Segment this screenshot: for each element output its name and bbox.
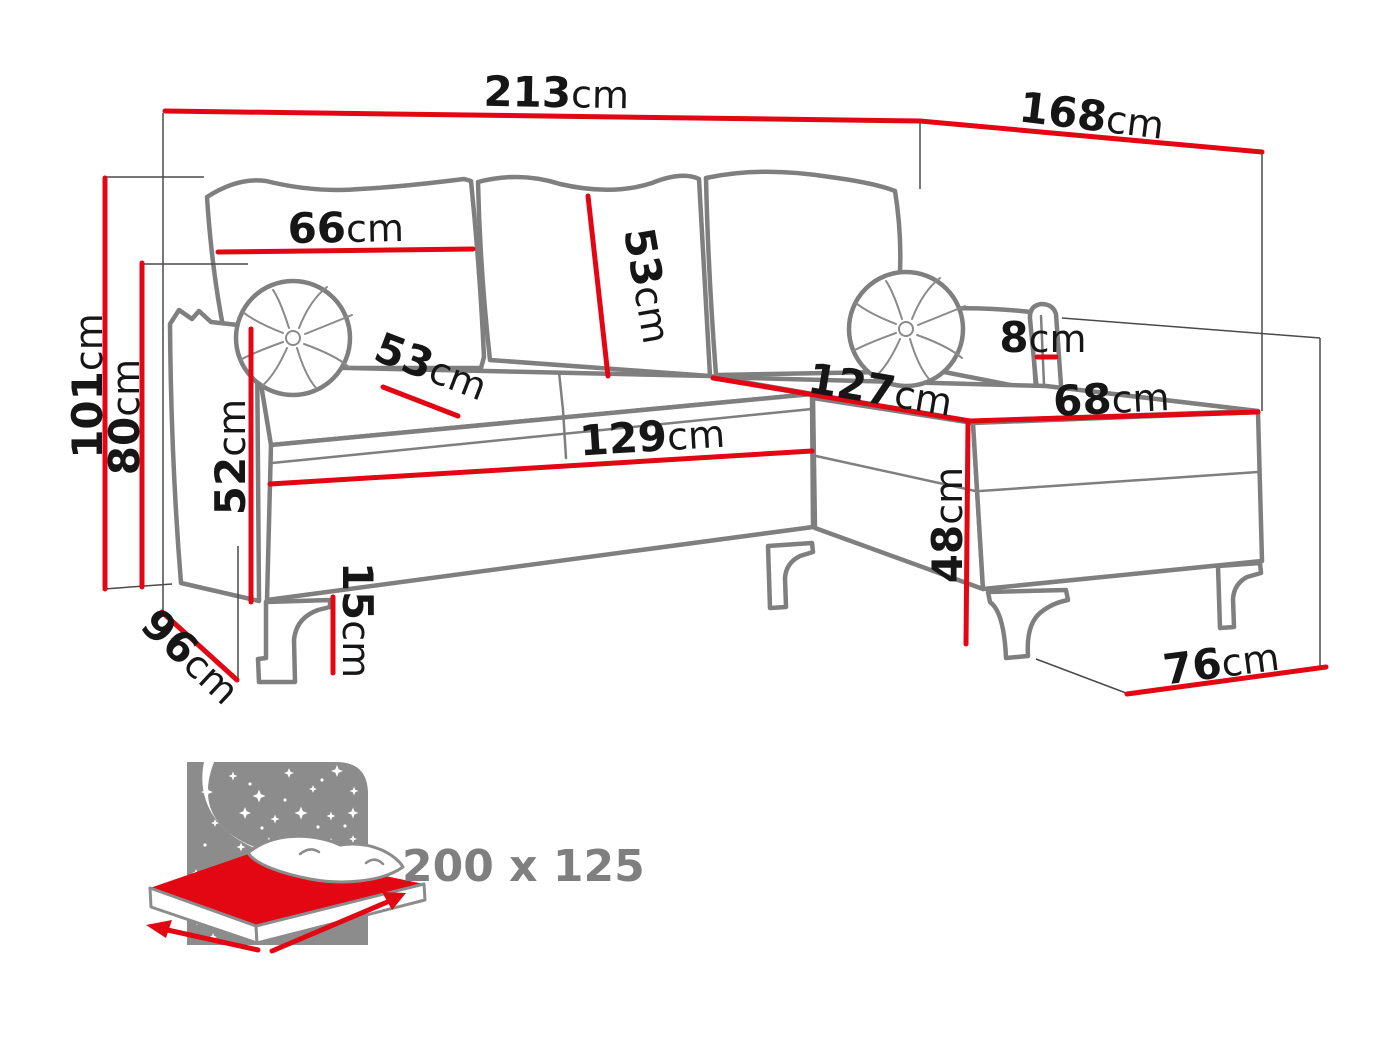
leg-chaise-right	[1218, 563, 1261, 628]
dimension-width-total: 213cm	[165, 67, 920, 121]
dimension-armrest-top: 8cm	[999, 313, 1086, 362]
dim-label-depth-total: 168cm	[1017, 82, 1167, 148]
dim-label-armrest-top: 8cm	[999, 313, 1086, 362]
dim-label-chaise-base-width: 76cm	[1160, 631, 1282, 695]
sleeping-area-size: 200 x 125	[402, 841, 645, 892]
dim-label-depth-base: 96cm	[132, 599, 251, 714]
dim-label-back-cushion-width: 66cm	[287, 202, 404, 253]
dimension-depth-total: 168cm	[920, 82, 1262, 152]
dim-label-height-backrest: 80cm	[100, 359, 149, 475]
sofa-bed-icon: 200 x 125	[0, 762, 645, 951]
dim-label-leg-height: 15cm	[333, 562, 382, 678]
chaise-right-face	[973, 412, 1262, 589]
dim-label-armrest-height: 52cm	[206, 399, 255, 515]
dim-label-width-total: 213cm	[483, 67, 629, 119]
leg-front-right	[768, 543, 813, 608]
dim-label-seat-width: 129cm	[578, 408, 726, 466]
diagram-svg: 213cm 168cm 101cm 80cm 66cm 53cm 53cm 12…	[0, 0, 1398, 1048]
sofa-dimension-diagram: 213cm 168cm 101cm 80cm 66cm 53cm 53cm 12…	[0, 0, 1398, 1048]
dimension-depth-base: 96cm	[132, 599, 251, 714]
dim-label-chaise-height: 48cm	[923, 467, 972, 583]
leg-front-left	[258, 600, 330, 682]
back-cushion-middle	[478, 176, 710, 376]
dimension-chaise-base-width: 76cm	[1127, 631, 1326, 695]
dim-label-chaise-width: 68cm	[1052, 371, 1171, 426]
dimension-leg-height: 15cm	[333, 562, 382, 678]
leg-chaise-front	[988, 590, 1068, 658]
